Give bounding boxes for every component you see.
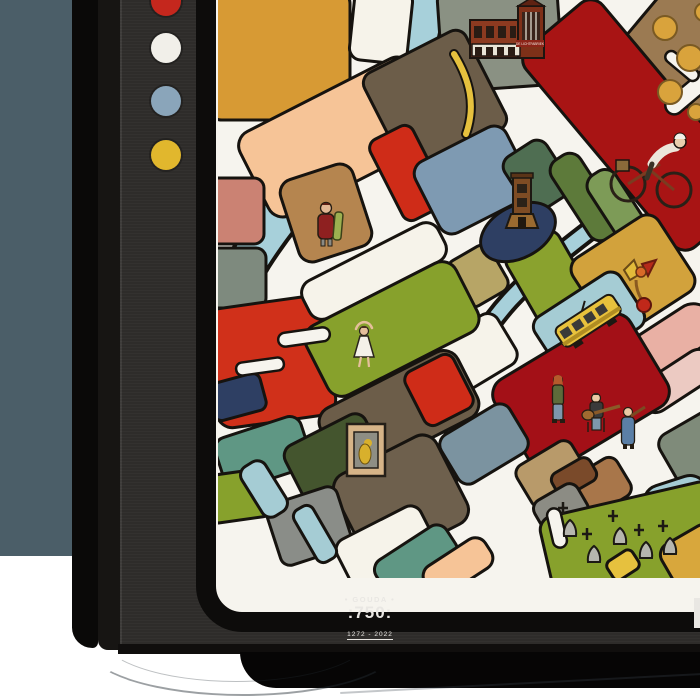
yellow-dot bbox=[151, 140, 181, 170]
shadow-arc-2 bbox=[100, 588, 372, 682]
frame-color-dots bbox=[151, 0, 181, 200]
map-parcel bbox=[218, 178, 264, 244]
panel-side-edge-inner bbox=[98, 0, 122, 650]
blue-dot bbox=[151, 86, 181, 116]
white-dot bbox=[151, 33, 181, 63]
map-parcel bbox=[218, 248, 266, 308]
red-dot bbox=[151, 0, 181, 16]
framed-map-artwork: DE LICHTFABRIEK bbox=[196, 0, 700, 632]
panel-side-edge bbox=[72, 0, 98, 648]
panel-edge-highlight bbox=[120, 0, 122, 646]
product-photo-scene: DE LICHTFABRIEK bbox=[0, 0, 700, 700]
gouda-city-map: DE LICHTFABRIEK bbox=[218, 0, 700, 578]
background-wall bbox=[0, 0, 72, 556]
partial-logo-mark bbox=[694, 598, 700, 628]
city-parcels bbox=[218, 0, 700, 578]
painting-icon bbox=[347, 424, 385, 476]
svg-text:DE LICHTFABRIEK: DE LICHTFABRIEK bbox=[516, 42, 545, 46]
